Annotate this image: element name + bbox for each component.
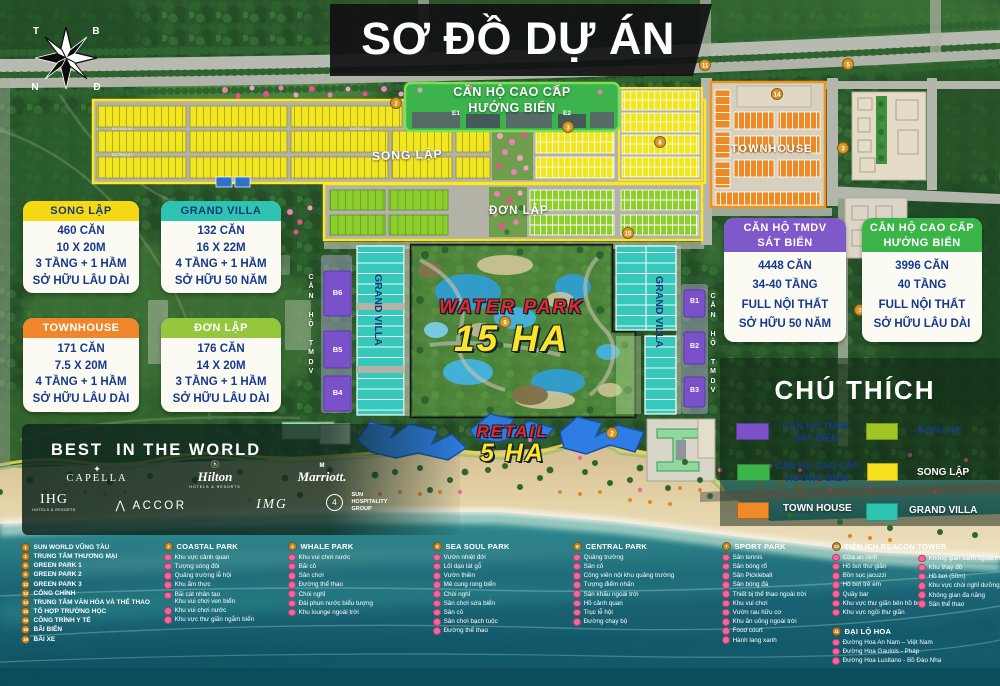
svg-text:14: 14 [774, 93, 781, 99]
svg-text:ĐƯỜNG A3: ĐƯỜNG A3 [112, 152, 132, 157]
svg-text:T: T [33, 26, 39, 37]
svg-text:N: N [31, 82, 38, 93]
svg-text:B: B [92, 26, 99, 37]
svg-text:Đ: Đ [93, 82, 100, 93]
svg-text:ĐƯỜNG A2: ĐƯỜNG A2 [350, 126, 370, 131]
svg-text:15: 15 [625, 232, 632, 238]
svg-text:11: 11 [702, 64, 709, 70]
svg-text:ĐƯỜNG A2: ĐƯỜNG A2 [112, 126, 132, 131]
